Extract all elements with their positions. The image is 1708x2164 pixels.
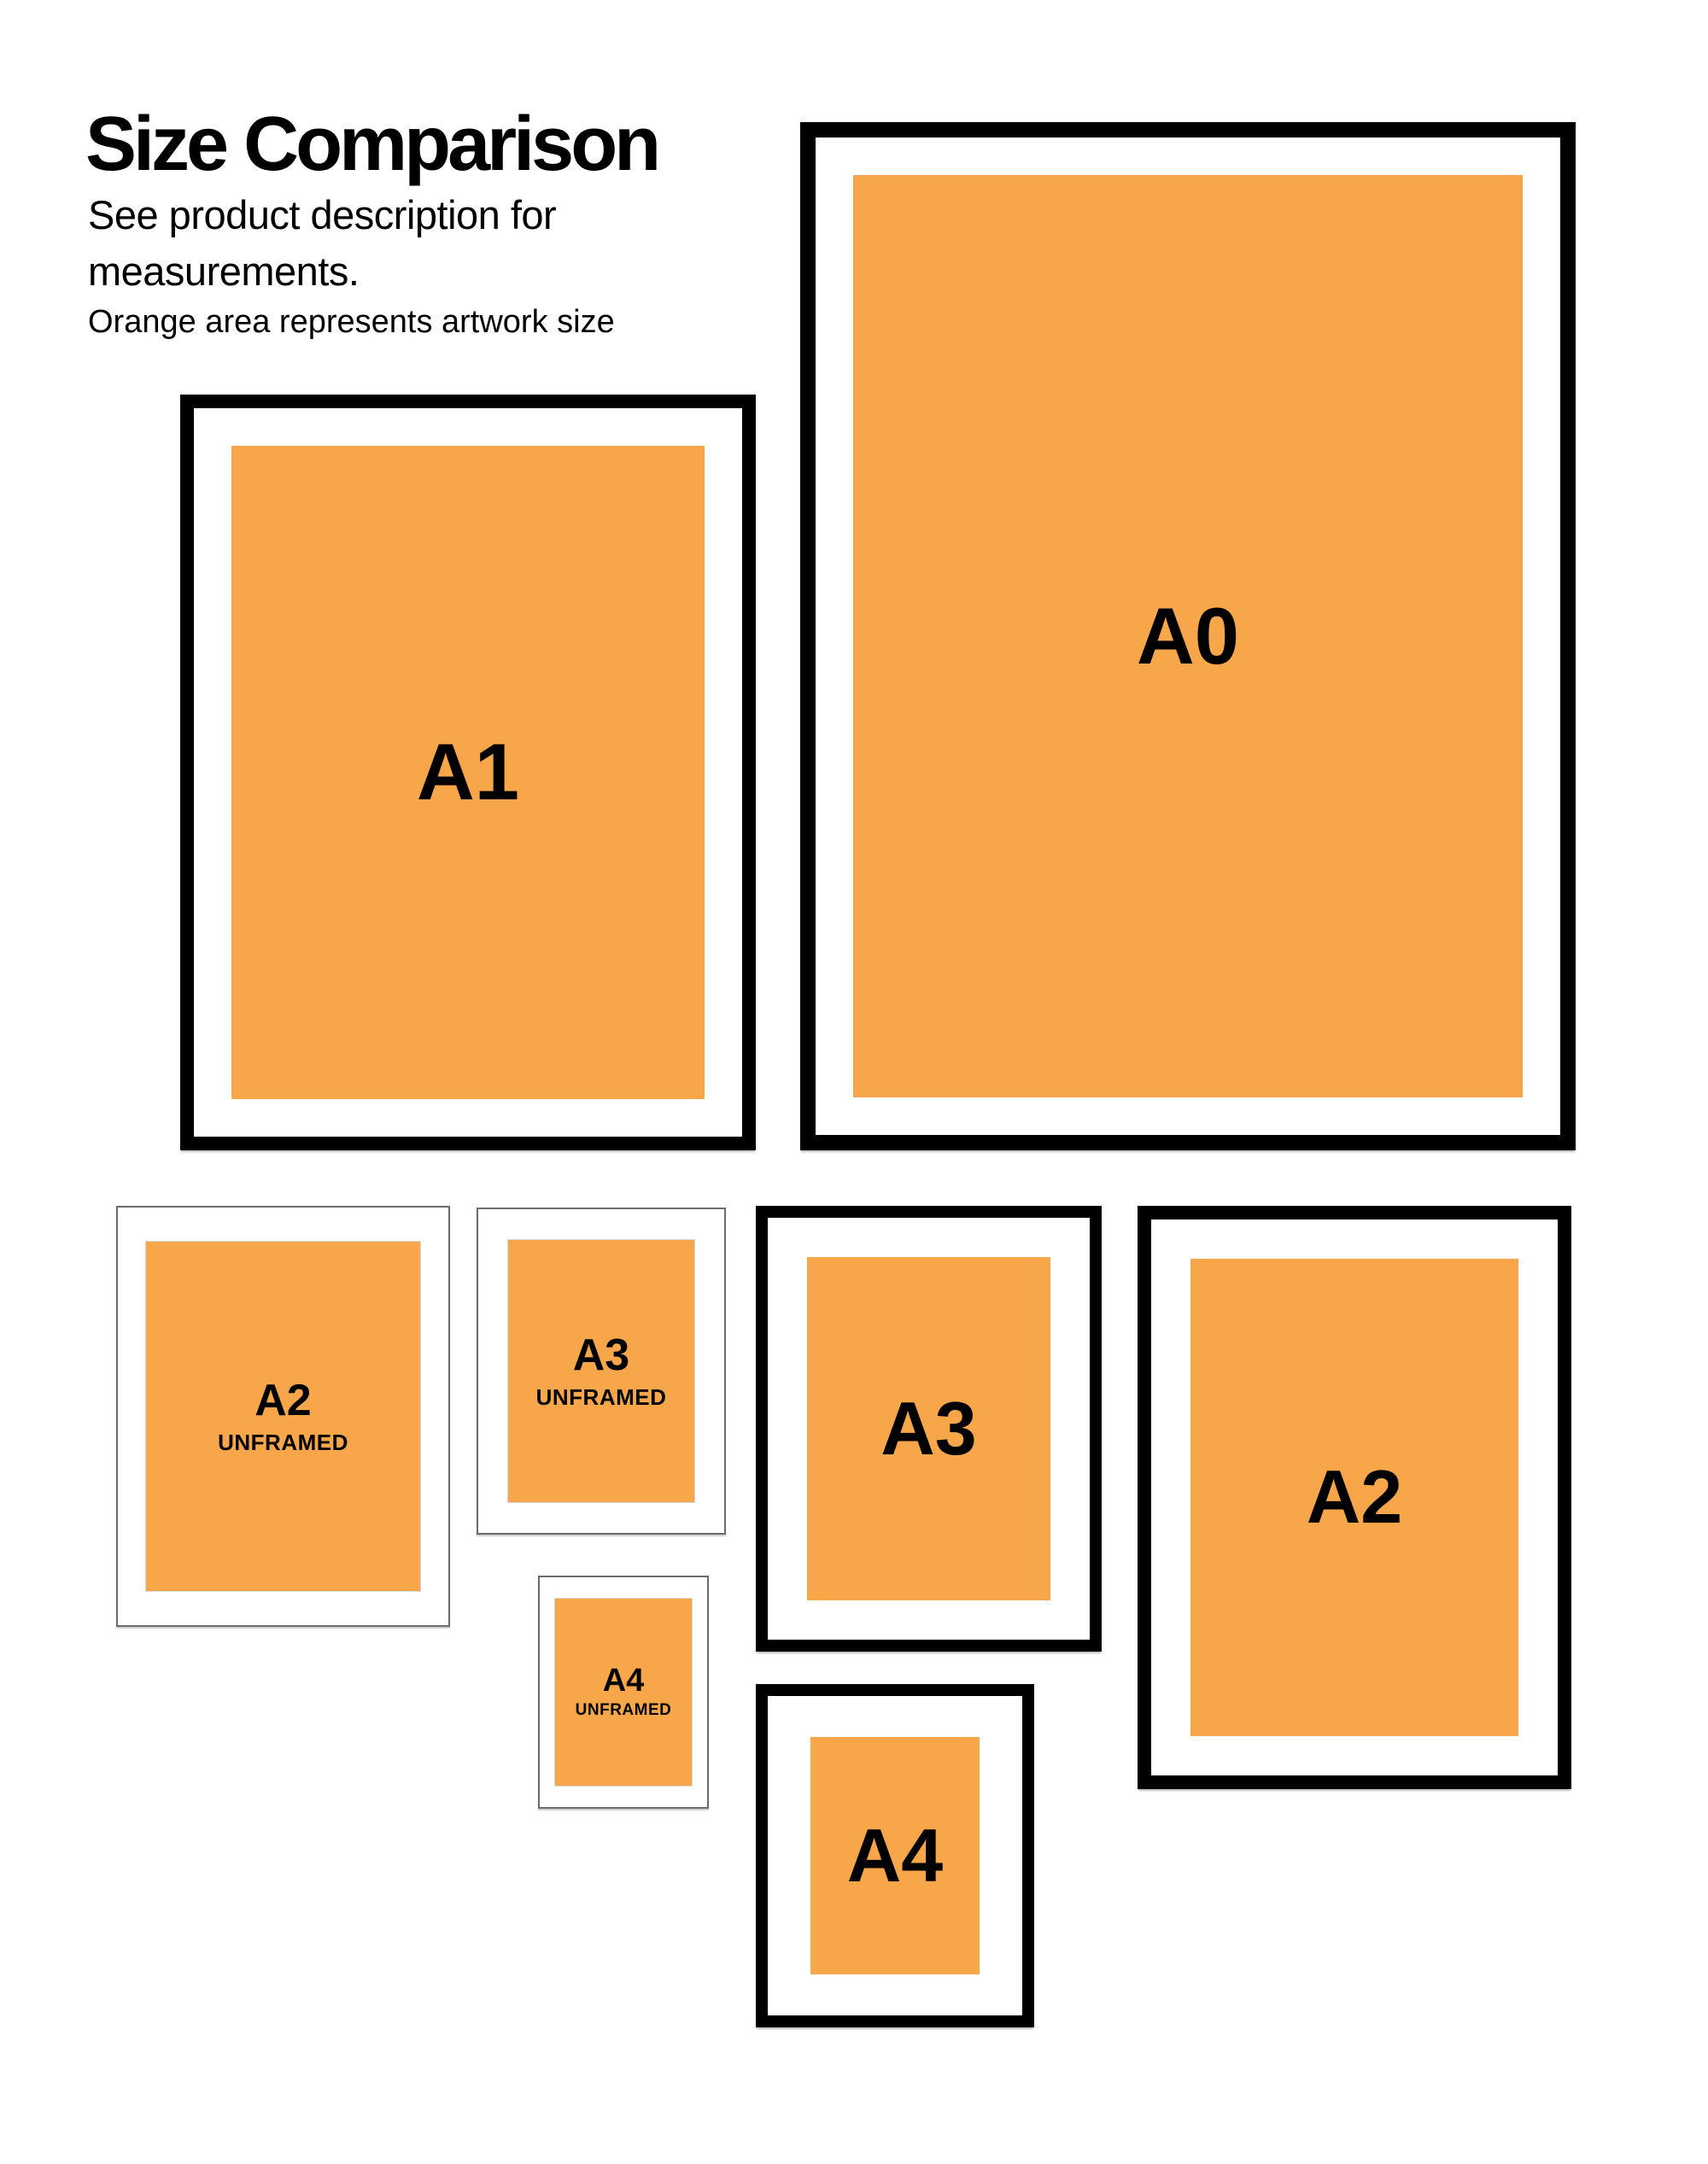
a0-label: A0: [1137, 594, 1239, 679]
a4-frame: A4: [756, 1684, 1034, 2027]
a2-unframed-label: A2: [254, 1377, 311, 1424]
size-comparison-diagram: Size Comparison See product description …: [0, 0, 1708, 2164]
a3-unframed-label: A3: [573, 1332, 629, 1379]
a0-frame: A0: [800, 122, 1576, 1150]
a4-unframed-label: A4: [603, 1664, 645, 1699]
a2-frame: A2: [1138, 1206, 1571, 1789]
a2-unframed-box: A2 UNFRAMED: [116, 1206, 450, 1627]
orange-area-caption: Orange area represents artwork size: [88, 304, 615, 341]
subtitle-line-2: measurements.: [88, 243, 556, 300]
a2-label: A2: [1307, 1458, 1403, 1536]
a4-unframed-box: A4 UNFRAMED: [538, 1576, 709, 1809]
a3-unframed-sublabel: UNFRAMED: [536, 1385, 667, 1410]
a4-unframed-sublabel: UNFRAMED: [576, 1702, 672, 1720]
page-title: Size Comparison: [85, 106, 658, 183]
a3-frame: A3: [756, 1206, 1102, 1652]
a3-unframed-artwork: A3 UNFRAMED: [508, 1240, 694, 1502]
a1-label: A1: [417, 730, 519, 815]
a3-unframed-box: A3 UNFRAMED: [477, 1208, 726, 1535]
a1-frame: A1: [180, 395, 756, 1150]
a3-artwork: A3: [807, 1257, 1050, 1600]
a0-artwork: A0: [853, 175, 1523, 1097]
a1-artwork: A1: [231, 446, 705, 1099]
a2-artwork: A2: [1190, 1259, 1518, 1736]
a4-unframed-artwork: A4 UNFRAMED: [555, 1599, 692, 1786]
a2-unframed-sublabel: UNFRAMED: [218, 1430, 348, 1455]
subtitle-line-1: See product description for: [88, 187, 556, 243]
a3-label: A3: [880, 1389, 977, 1468]
a4-label: A4: [847, 1816, 944, 1895]
a2-unframed-artwork: A2 UNFRAMED: [146, 1242, 420, 1591]
a4-artwork: A4: [810, 1737, 980, 1974]
subtitle: See product description for measurements…: [88, 187, 556, 300]
